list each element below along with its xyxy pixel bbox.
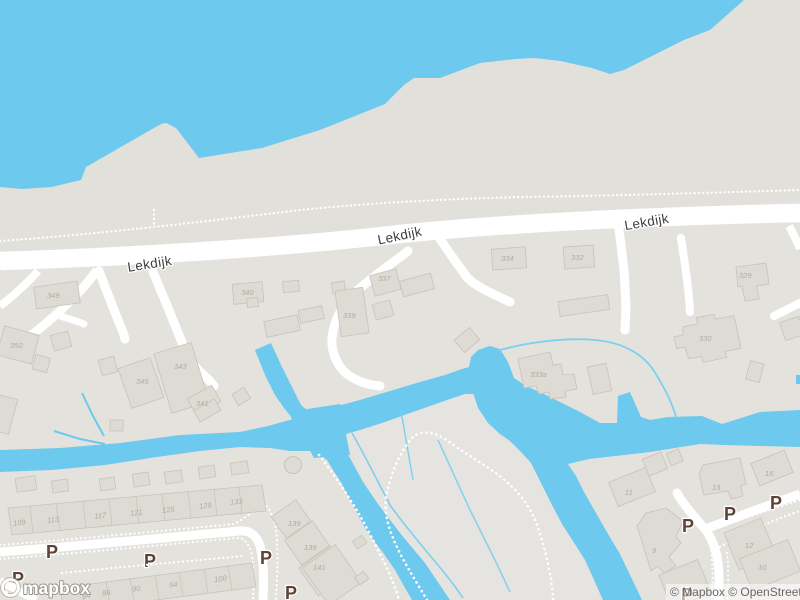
svg-text:340: 340: [241, 288, 254, 297]
svg-text:121: 121: [130, 508, 143, 518]
svg-text:133: 133: [230, 496, 244, 506]
svg-text:109: 109: [13, 517, 27, 527]
svg-text:© Mapbox © OpenStreetMap: © Mapbox © OpenStreetMap: [670, 585, 800, 599]
svg-text:P: P: [770, 493, 782, 513]
svg-text:P: P: [46, 542, 58, 562]
svg-text:P: P: [144, 551, 156, 571]
svg-text:345: 345: [136, 377, 149, 386]
svg-text:12: 12: [745, 541, 754, 550]
svg-text:100: 100: [214, 573, 228, 584]
svg-text:125: 125: [162, 504, 176, 514]
svg-text:139: 139: [288, 519, 301, 528]
svg-text:350: 350: [10, 341, 23, 350]
svg-text:P: P: [724, 504, 736, 524]
svg-text:334: 334: [501, 254, 514, 263]
svg-text:94: 94: [169, 580, 178, 590]
svg-text:13: 13: [712, 483, 721, 492]
svg-text:10: 10: [758, 563, 767, 572]
svg-text:341: 341: [196, 399, 209, 408]
svg-text:117: 117: [94, 511, 108, 521]
svg-text:330: 330: [699, 334, 712, 343]
svg-text:141: 141: [313, 563, 326, 572]
svg-text:332: 332: [571, 253, 584, 262]
svg-text:333a: 333a: [530, 370, 547, 379]
svg-text:15: 15: [765, 469, 774, 478]
svg-text:337: 337: [378, 274, 391, 283]
svg-text:349: 349: [47, 291, 60, 300]
svg-text:P: P: [682, 516, 694, 536]
svg-text:11: 11: [625, 488, 633, 497]
svg-text:P: P: [285, 583, 297, 600]
svg-text:343: 343: [174, 362, 187, 371]
svg-text:129: 129: [199, 500, 213, 510]
svg-text:113: 113: [47, 515, 61, 525]
svg-text:P: P: [260, 548, 272, 568]
svg-text:mapbox: mapbox: [23, 578, 90, 598]
svg-text:339: 339: [343, 311, 356, 320]
svg-text:139: 139: [304, 543, 317, 552]
svg-text:329: 329: [739, 271, 752, 280]
